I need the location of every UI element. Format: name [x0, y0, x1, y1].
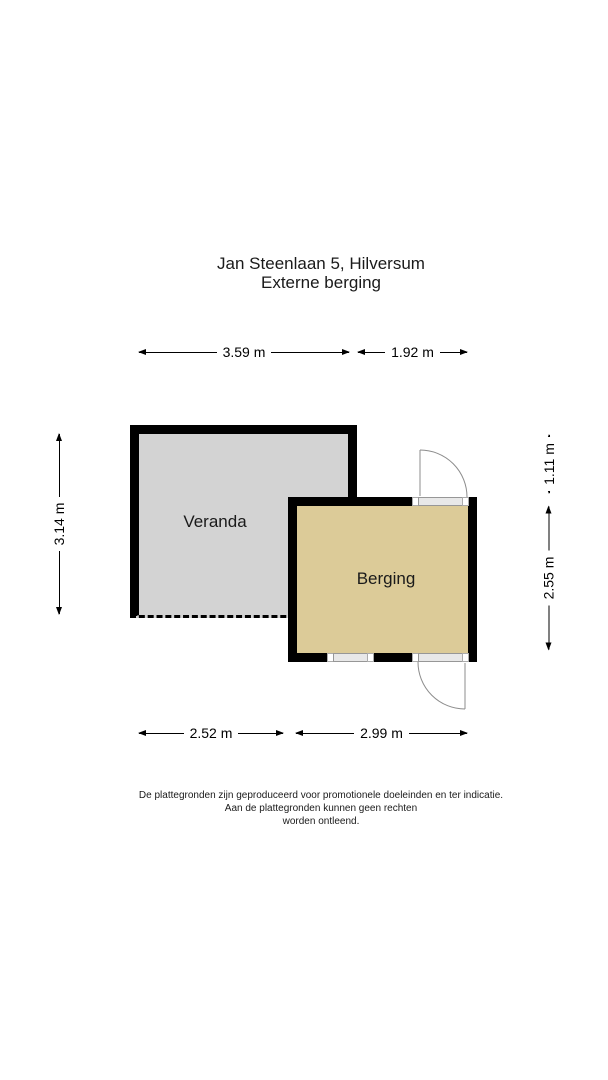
dimension-left-veranda: 3.14 m — [52, 433, 66, 615]
dimension-label: 2.55 m — [542, 551, 556, 606]
dimension-label: 1.11 m — [542, 437, 556, 491]
dimension-label: 2.52 m — [184, 726, 239, 740]
page-title-subtitle: Externe berging — [175, 273, 467, 292]
window-jamb — [367, 653, 374, 662]
room-veranda-label: Veranda — [155, 512, 275, 532]
dimension-label: 3.59 m — [217, 345, 272, 359]
disclaimer-line: worden ontleend. — [0, 815, 608, 828]
dimension-label: 2.99 m — [354, 726, 409, 740]
disclaimer: De plattegronden zijn geproduceerd voor … — [0, 789, 608, 828]
room-berging-label: Berging — [326, 569, 446, 589]
door-opening-bottom — [418, 653, 463, 662]
dimension-top-berging: 1.92 m — [357, 345, 468, 359]
window-bottom — [333, 653, 368, 662]
dimension-label: 3.14 m — [52, 497, 66, 552]
dimension-right-offset: 1.11 m — [542, 434, 556, 494]
door-jamb — [462, 653, 469, 662]
page-title-address: Jan Steenlaan 5, Hilversum — [175, 254, 467, 273]
disclaimer-line: Aan de plattegronden kunnen geen rechten — [0, 802, 608, 815]
door-swing-bottom-icon — [418, 662, 465, 709]
door-opening-top — [418, 497, 463, 506]
door-jamb — [462, 497, 469, 506]
page-title: Jan Steenlaan 5, Hilversum Externe bergi… — [175, 254, 467, 292]
dimension-bottom-berging: 2.99 m — [295, 726, 468, 740]
dimension-right-berging: 2.55 m — [542, 506, 556, 651]
dimension-top-veranda: 3.59 m — [138, 345, 350, 359]
door-swing-top-icon — [420, 450, 467, 497]
dimension-label: 1.92 m — [385, 345, 440, 359]
dimension-bottom-veranda: 2.52 m — [138, 726, 284, 740]
disclaimer-line: De plattegronden zijn geproduceerd voor … — [0, 789, 608, 802]
floorplan-page: Jan Steenlaan 5, Hilversum Externe bergi… — [0, 0, 608, 1080]
